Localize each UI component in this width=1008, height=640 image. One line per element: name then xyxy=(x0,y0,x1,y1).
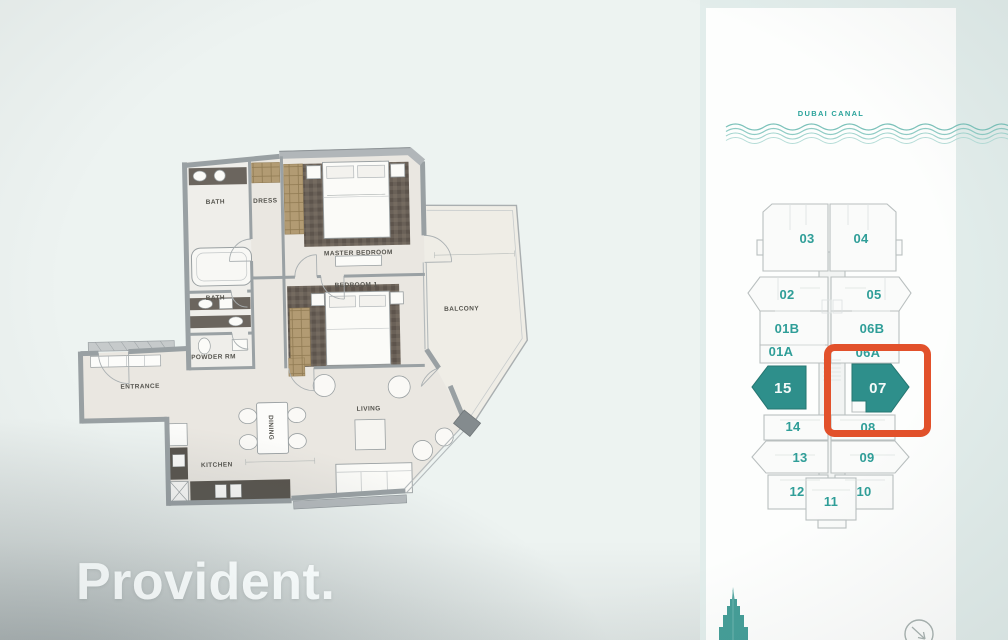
room-label-bedroom1: BEDROOM 1 xyxy=(335,281,378,289)
unit-label-14: 14 xyxy=(785,419,801,434)
canal-label: DUBAI CANAL xyxy=(798,109,864,118)
unit-label-13: 13 xyxy=(792,450,807,465)
room-label-bath1: BATH xyxy=(206,199,225,206)
unit-label-03: 03 xyxy=(799,231,814,246)
unit-label-01a: 01A xyxy=(769,344,794,359)
room-label-dining: DINING xyxy=(267,415,275,440)
room-label-master-bedroom: MASTER BEDROOM xyxy=(324,249,393,257)
room-label-powder-rm: POWDER RM xyxy=(191,353,236,361)
room-label-living: LIVING xyxy=(357,405,381,413)
unit-label-06b: 06B xyxy=(860,321,885,336)
unit-label-07: 07 xyxy=(869,380,887,397)
unit-label-02: 02 xyxy=(779,287,794,302)
room-label-bath2: BATH xyxy=(206,295,225,302)
room-label-balcony: BALCONY xyxy=(444,305,479,313)
floor-plan: BATH DRESS MASTER BEDROOM BATH BEDROOM 1… xyxy=(0,0,706,640)
dress-wardrobe xyxy=(251,162,279,183)
provident-watermark: Provident. xyxy=(76,552,335,612)
unit-label-12: 12 xyxy=(789,484,804,499)
unit-label-11: 11 xyxy=(824,494,838,509)
screenshot-stage: BATH DRESS MASTER BEDROOM BATH BEDROOM 1… xyxy=(0,0,1008,640)
unit-label-15: 15 xyxy=(774,380,792,397)
key-plan-panel: DUBAI CANAL xyxy=(700,0,1008,640)
unit-label-01b: 01B xyxy=(775,321,800,336)
bedroom-1 xyxy=(287,284,405,367)
unit-label-09: 09 xyxy=(859,450,874,465)
room-label-kitchen: KITCHEN xyxy=(201,461,233,469)
unit-label-04: 04 xyxy=(853,231,869,246)
room-label-dress: DRESS xyxy=(253,197,278,205)
unit-label-05: 05 xyxy=(866,287,881,302)
unit-label-10: 10 xyxy=(856,484,871,499)
room-label-entrance: ENTRANCE xyxy=(120,383,160,391)
